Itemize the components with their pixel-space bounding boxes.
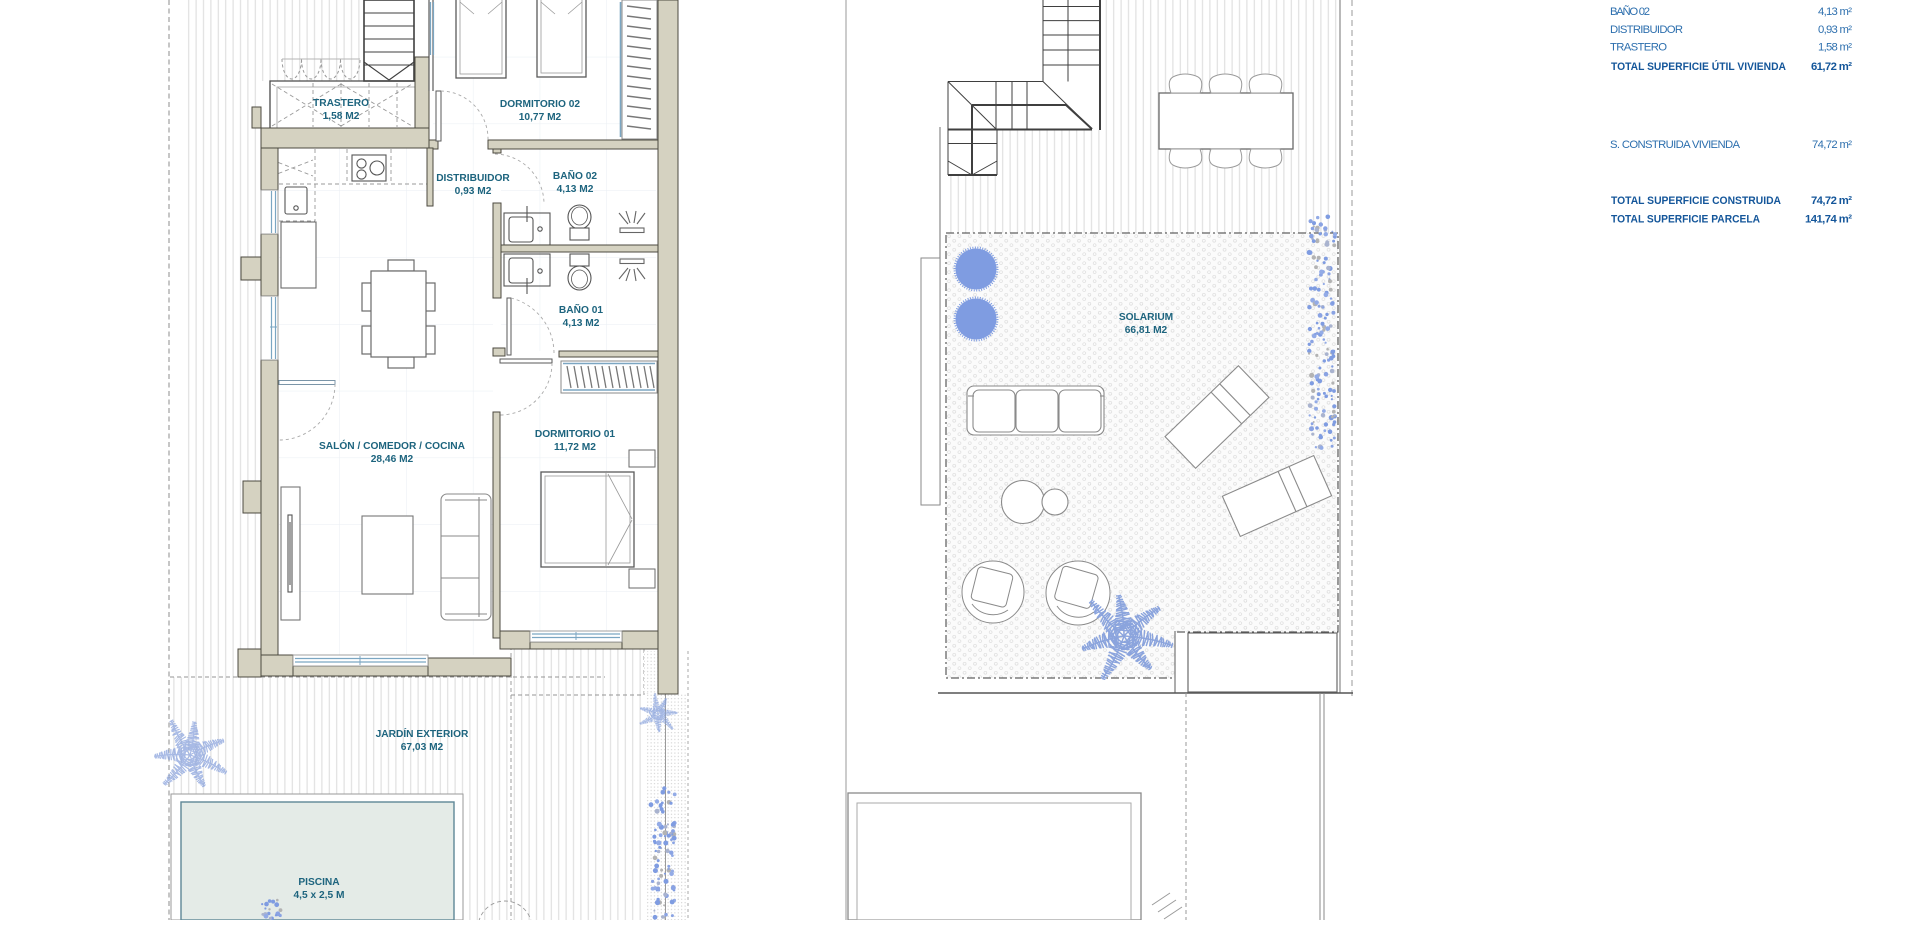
svg-text:28,46 M2: 28,46 M2 — [371, 454, 414, 465]
svg-text:1,58 m²: 1,58 m² — [1818, 42, 1852, 54]
svg-text:1,58 M2: 1,58 M2 — [323, 111, 360, 122]
svg-text:PISCINA: PISCINA — [298, 877, 340, 888]
svg-text:S. CONSTRUIDA VIVIENDA: S. CONSTRUIDA VIVIENDA — [1610, 139, 1740, 151]
svg-text:10,77 M2: 10,77 M2 — [519, 112, 562, 123]
svg-text:4,13 m²: 4,13 m² — [1818, 6, 1852, 18]
svg-text:4,13 M2: 4,13 M2 — [557, 184, 594, 195]
svg-text:11,72 M2: 11,72 M2 — [554, 442, 596, 453]
svg-text:BAÑO 02: BAÑO 02 — [553, 169, 597, 182]
svg-text:TOTAL SUPERFICIE CONSTRUIDA: TOTAL SUPERFICIE CONSTRUIDA — [1611, 195, 1781, 207]
svg-text:0,93 m²: 0,93 m² — [1818, 24, 1852, 36]
svg-text:TRASTERO: TRASTERO — [1610, 42, 1667, 54]
svg-text:4,5 x 2,5 M: 4,5 x 2,5 M — [294, 890, 345, 901]
svg-text:BAÑO 02: BAÑO 02 — [1610, 5, 1650, 18]
svg-text:TOTAL SUPERFICIE PARCELA: TOTAL SUPERFICIE PARCELA — [1611, 214, 1760, 226]
svg-text:DISTRIBUIDOR: DISTRIBUIDOR — [1610, 24, 1683, 36]
svg-text:TRASTERO: TRASTERO — [313, 98, 369, 109]
svg-text:74,72 m²: 74,72 m² — [1811, 195, 1852, 207]
svg-text:4,13 M2: 4,13 M2 — [563, 318, 600, 329]
svg-text:TOTAL SUPERFICIE ÚTIL VIVIENDA: TOTAL SUPERFICIE ÚTIL VIVIENDA — [1611, 60, 1786, 73]
svg-text:66,81 M2: 66,81 M2 — [1125, 325, 1168, 336]
svg-text:SOLARIUM: SOLARIUM — [1119, 312, 1173, 323]
svg-text:DORMITORIO 02: DORMITORIO 02 — [500, 99, 581, 110]
svg-text:61,72 m²: 61,72 m² — [1811, 61, 1852, 73]
svg-text:141,74 m²: 141,74 m² — [1805, 214, 1852, 226]
svg-text:74,72 m²: 74,72 m² — [1812, 139, 1852, 151]
svg-text:JARDÍN EXTERIOR: JARDÍN EXTERIOR — [376, 727, 469, 740]
svg-text:DISTRIBUIDOR: DISTRIBUIDOR — [436, 173, 510, 184]
svg-text:BAÑO 01: BAÑO 01 — [559, 303, 603, 316]
svg-text:DORMITORIO 01: DORMITORIO 01 — [535, 429, 616, 440]
svg-text:SALÓN / COMEDOR / COCINA: SALÓN / COMEDOR / COCINA — [319, 439, 466, 452]
svg-text:67,03 M2: 67,03 M2 — [401, 742, 444, 753]
svg-text:0,93 M2: 0,93 M2 — [455, 186, 492, 197]
